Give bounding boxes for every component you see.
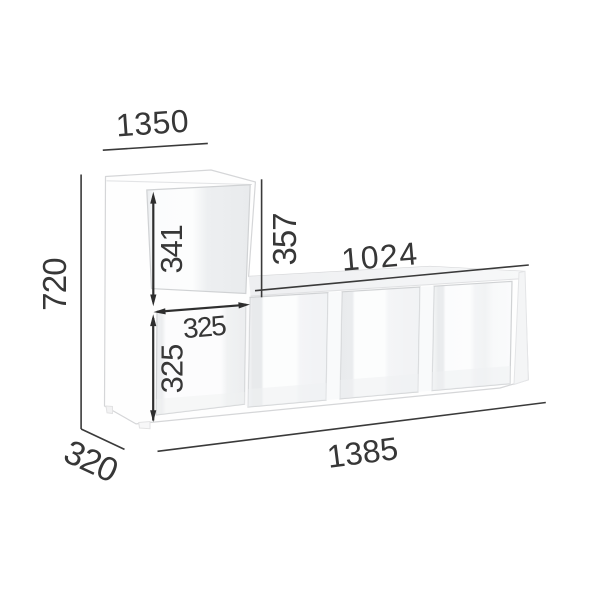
svg-text:325: 325: [155, 345, 190, 394]
svg-text:720: 720: [36, 258, 73, 311]
svg-text:1350: 1350: [115, 102, 191, 143]
svg-text:341: 341: [154, 226, 189, 274]
svg-text:1024: 1024: [340, 235, 420, 278]
svg-text:325: 325: [182, 310, 228, 345]
svg-text:357: 357: [266, 213, 303, 265]
